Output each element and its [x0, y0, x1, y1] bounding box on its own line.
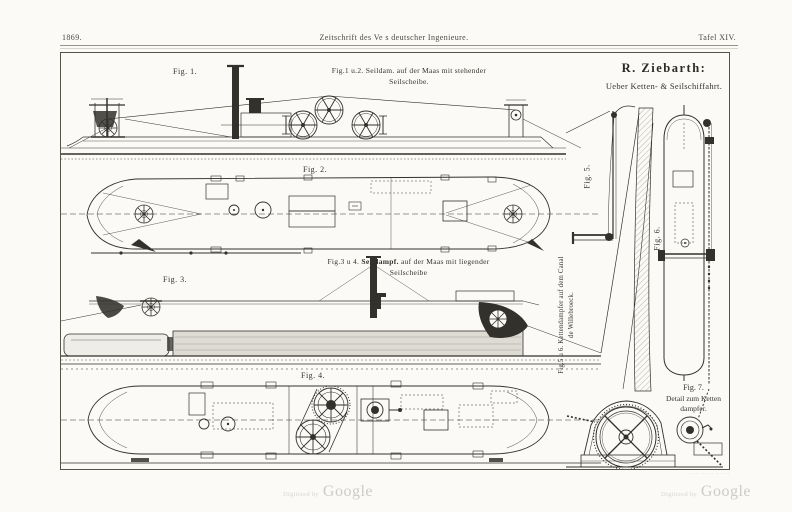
fig6-label: Fig. 6.: [653, 221, 662, 257]
fig7-caption-line2: dampfer.: [641, 404, 746, 415]
year-label: 1869.: [62, 33, 82, 42]
fig1-2-caption: Fig.1 u.2. Seildam. auf der Maas mit ste…: [299, 65, 519, 87]
journal-title: Zeitschrift des Ve s deutscher Ingenieur…: [244, 33, 544, 42]
fig3-4-caption: Fig.3 u 4. Seildampf. auf der Maas mit l…: [296, 256, 521, 278]
fig6-drawing: [658, 105, 715, 385]
google-watermark-right: Digitized by Google: [661, 483, 751, 501]
plate-number: Tafel XIV.: [676, 33, 736, 42]
fig3-4-caption-line1: Fig.3 u 4. Seildampf. auf der Maas mit l…: [296, 256, 521, 267]
scanned-journal-plate: 1869. Zeitschrift des Ve s deutscher Ing…: [0, 0, 792, 512]
fig1-label: Fig. 1.: [173, 67, 197, 76]
fig7-label: Fig. 7.: [641, 383, 746, 394]
fig2-label: Fig. 2.: [303, 165, 327, 174]
fig1-2-caption-line2: Seilscheibe.: [299, 76, 519, 87]
plate-frame: Fig. 1. Fig.1 u.2. Seildam. auf der Maas…: [60, 52, 730, 470]
google-logo-text: Google: [323, 483, 373, 500]
google-watermark-left: Digitized by Google: [283, 483, 373, 501]
printer-imprint: · ·· ··· ·· · ····: [650, 471, 730, 476]
fig3-4-caption-line2: Seilscheibe: [296, 267, 521, 278]
fig2-drawing: [61, 175, 601, 255]
fig7-caption-line1: Detail zum Ketten: [641, 394, 746, 405]
fig5-label: Fig. 5.: [583, 159, 592, 195]
fig5-6-caption-line1: Fig.5 u 6. Kettendampfer auf dem Canal: [557, 235, 567, 395]
header-rule: [60, 45, 738, 49]
article-title: Ueber Ketten- & Seilschiffahrt.: [601, 81, 727, 91]
plate-title-block: R. Ziebarth: Ueber Ketten- & Seilschiffa…: [601, 61, 727, 91]
fig5-6-caption: Fig.5 u 6. Kettendampfer auf dem Canal d…: [557, 235, 577, 395]
fig5-drawing: [566, 106, 653, 391]
author-name: R. Ziebarth:: [601, 61, 727, 76]
fig3-label: Fig. 3.: [163, 275, 187, 284]
fig4-label: Fig. 4.: [301, 371, 325, 380]
fig4-drawing: [61, 381, 601, 463]
google-logo-text: Google: [701, 483, 751, 500]
fig1-2-caption-line1: Fig.1 u.2. Seildam. auf der Maas mit ste…: [299, 65, 519, 76]
fig5-6-caption-line2: de Willebroeck.: [567, 235, 577, 395]
digitized-by-text: Digitized by: [661, 491, 697, 498]
digitized-by-text: Digitized by: [283, 491, 319, 498]
fig7-caption: Fig. 7. Detail zum Ketten dampfer.: [641, 383, 746, 415]
